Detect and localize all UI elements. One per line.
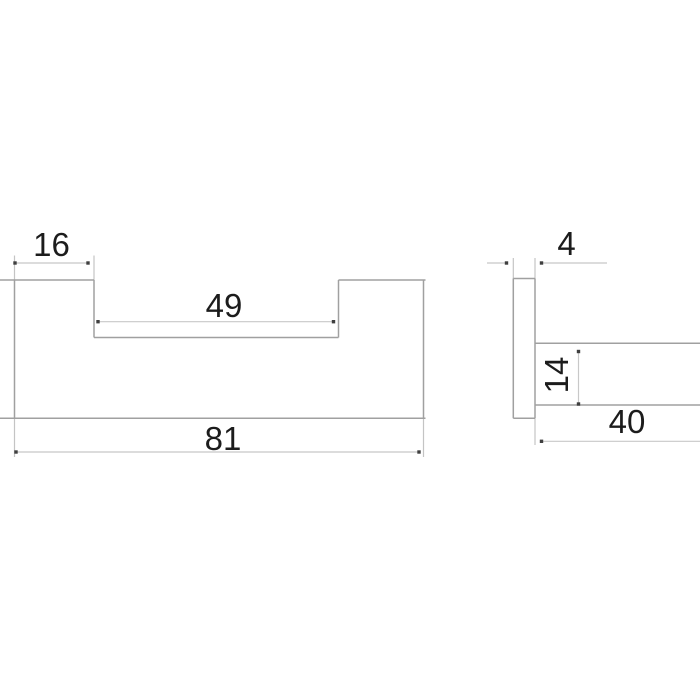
outline-group bbox=[0, 279, 700, 419]
drawing-canvas: 16498141440 bbox=[0, 0, 700, 700]
markers-group bbox=[13, 261, 580, 453]
dimension-label-49: 49 bbox=[206, 287, 243, 324]
technical-drawing: 16498141440 bbox=[0, 0, 700, 700]
dimension-end-marker bbox=[577, 350, 580, 353]
dimension-end-marker bbox=[14, 450, 17, 453]
dimension-end-marker bbox=[332, 320, 335, 323]
dimension-label-81: 81 bbox=[205, 420, 242, 457]
dimension-label-16: 16 bbox=[33, 226, 70, 263]
dimension-end-marker bbox=[540, 440, 543, 443]
dimension-lines-group bbox=[15, 263, 700, 452]
dimension-end-marker bbox=[505, 261, 508, 264]
dimension-label-4: 4 bbox=[557, 225, 575, 262]
dimension-end-marker bbox=[96, 320, 99, 323]
dimension-label-14: 14 bbox=[538, 357, 575, 394]
dimension-end-marker bbox=[86, 261, 89, 264]
dimension-end-marker bbox=[540, 261, 543, 264]
dimension-end-marker bbox=[417, 450, 420, 453]
dimension-end-marker bbox=[577, 402, 580, 405]
labels-group: 16498141440 bbox=[33, 225, 645, 457]
dimension-end-marker bbox=[13, 261, 16, 264]
extension-lines-group bbox=[15, 256, 536, 458]
dimension-label-40: 40 bbox=[609, 403, 646, 440]
